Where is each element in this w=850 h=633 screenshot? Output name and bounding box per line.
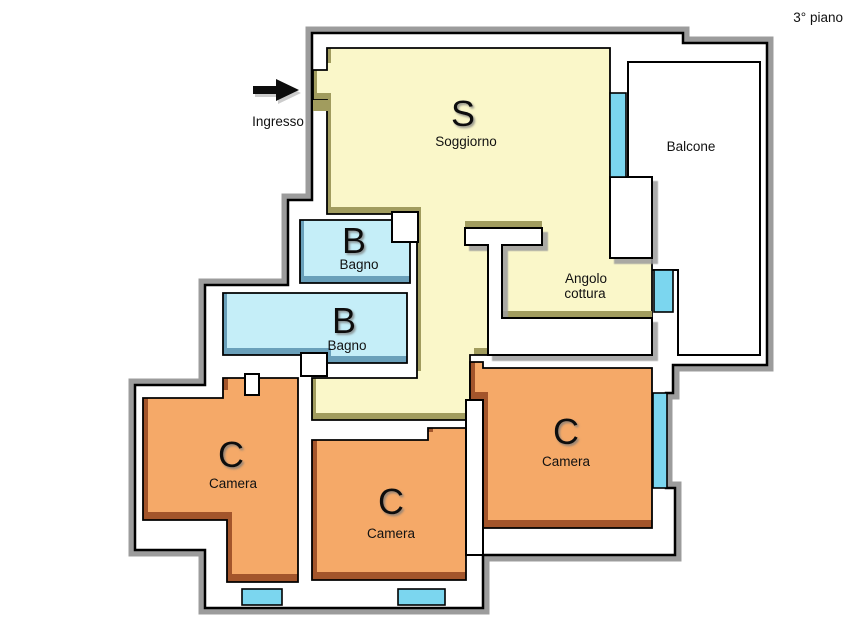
- door-jamb: [301, 353, 327, 376]
- floorplan: 3° piano Ingresso S B B C C C Soggiorno …: [0, 0, 850, 633]
- bagno2-letter: B: [332, 300, 356, 341]
- window-camera2: [398, 589, 445, 605]
- bevel-accent: [465, 221, 542, 228]
- bevel-accent: [313, 100, 329, 111]
- angolo-cottura-line2: cottura: [564, 286, 606, 301]
- soggiorno-name: Soggiorno: [435, 134, 497, 149]
- window-camera3: [653, 393, 667, 488]
- floorplan-canvas: 3° piano Ingresso S B B C C C Soggiorno …: [0, 0, 850, 633]
- window-cottura-balcone: [654, 270, 673, 312]
- angolo-cottura-line1: Angolo: [565, 271, 607, 286]
- door-jamb: [392, 212, 418, 242]
- entrance-label: Ingresso: [252, 114, 304, 129]
- camera1-letter: C: [218, 434, 244, 475]
- camera2-letter: C: [378, 481, 404, 522]
- door-jamb: [245, 374, 259, 395]
- entrance-arrow-icon: [253, 79, 301, 104]
- bagno2-name: Bagno: [327, 338, 366, 353]
- balcone-name: Balcone: [667, 139, 716, 154]
- soggiorno-letter: S: [451, 93, 475, 134]
- camera2-name: Camera: [367, 526, 416, 541]
- wall-camera3-left: [466, 400, 483, 555]
- window-soggiorno-balcone: [610, 93, 626, 177]
- camera1-name: Camera: [209, 476, 258, 491]
- wall-block: [610, 177, 652, 258]
- camera3-name: Camera: [542, 454, 591, 469]
- camera3-letter: C: [553, 411, 579, 452]
- window-camera1: [242, 589, 282, 605]
- bagno1-letter: B: [342, 220, 366, 261]
- floor-label: 3° piano: [793, 10, 843, 25]
- bagno1-name: Bagno: [339, 257, 378, 272]
- room-bagno-2: [223, 286, 411, 363]
- bevel-accent: [502, 311, 652, 318]
